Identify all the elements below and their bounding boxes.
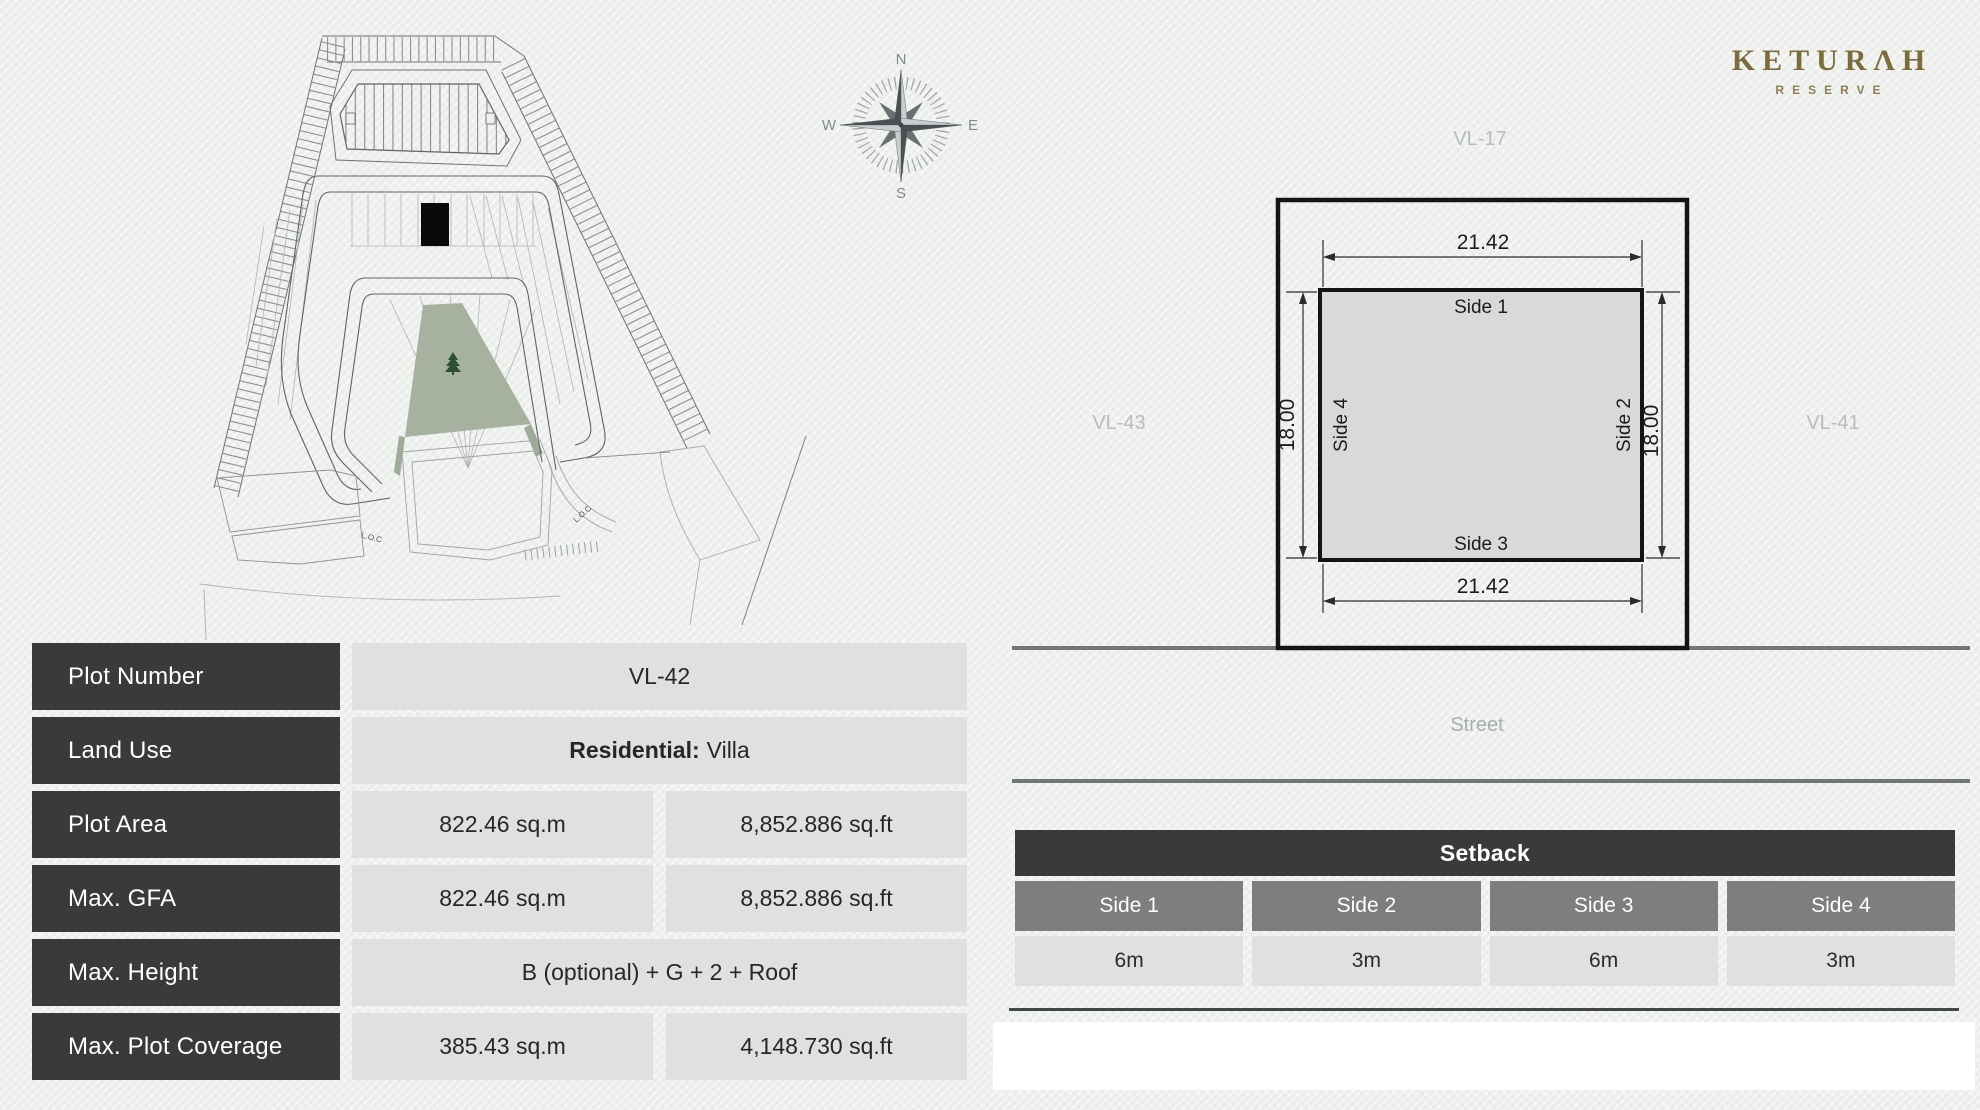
compass-e-label: E — [968, 117, 978, 134]
row-label: Plot Number — [32, 643, 340, 710]
plot-number-value: VL-42 — [352, 643, 967, 710]
max-gfa-sqm: 822.46 sq.m — [352, 865, 653, 932]
brand-logo: KETURΛH RESERVE — [1712, 44, 1952, 97]
buildable-area — [1320, 290, 1642, 560]
land-use-category: Residential: — [569, 737, 699, 764]
side4-label: Side 4 — [1331, 398, 1352, 452]
max-plot-coverage-sqm: 385.43 sq.m — [352, 1013, 653, 1080]
max-gfa-sqft: 8,852.886 sq.ft — [666, 865, 967, 932]
street-label: Street — [1450, 714, 1504, 736]
side1-label: Side 1 — [1454, 297, 1508, 318]
compass-w-label: W — [822, 117, 837, 134]
max-plot-coverage-sqft: 4,148.730 sq.ft — [666, 1013, 967, 1080]
neighbor-plot-right: VL-41 — [1806, 412, 1859, 434]
side3-label: Side 3 — [1454, 534, 1508, 555]
site-master-plan: L.O.C L.O.C — [30, 20, 830, 650]
row-label: Max. Plot Coverage — [32, 1013, 340, 1080]
table-row: Plot Number VL-42 — [32, 643, 967, 710]
row-label: Max. Height — [32, 939, 340, 1006]
setback-col-side2: Side 2 — [1252, 881, 1480, 931]
plot-area-sqft: 8,852.886 sq.ft — [666, 791, 967, 858]
footer-blank-panel — [993, 1022, 1975, 1090]
street-line-lower — [1012, 779, 1970, 783]
side2-label: Side 2 — [1614, 398, 1635, 452]
compass-rose: N S W E — [810, 28, 1000, 218]
table-row: Max. GFA 822.46 sq.m 8,852.886 sq.ft — [32, 865, 967, 932]
footer-divider-line — [1009, 1008, 1959, 1011]
setback-value-side4: 3m — [1727, 936, 1955, 986]
setback-value-side2: 3m — [1252, 936, 1480, 986]
setback-value-side3: 6m — [1490, 936, 1718, 986]
dim-left-value: 18.00 — [1276, 399, 1299, 452]
max-height-value: B (optional) + G + 2 + Roof — [352, 939, 967, 1006]
landmark-block — [421, 203, 449, 246]
land-use-type: Villa — [707, 737, 750, 764]
setback-col-side1: Side 1 — [1015, 881, 1243, 931]
plot-area-sqm: 822.46 sq.m — [352, 791, 653, 858]
setback-col-side3: Side 3 — [1490, 881, 1718, 931]
dim-bottom-value: 21.42 — [1457, 575, 1510, 598]
plot-dimension-diagram: VL-17 VL-43 VL-41 Street — [990, 95, 1980, 810]
table-row: Max. Plot Coverage 385.43 sq.m 4,148.730… — [32, 1013, 967, 1080]
row-label: Plot Area — [32, 791, 340, 858]
setback-title: Setback — [1015, 830, 1955, 876]
lower-blocks — [200, 436, 806, 640]
dim-top-value: 21.42 — [1457, 231, 1510, 254]
setback-header-row: Side 1 Side 2 Side 3 Side 4 — [1015, 881, 1955, 931]
table-row: Max. Height B (optional) + G + 2 + Roof — [32, 939, 967, 1006]
row-label: Land Use — [32, 717, 340, 784]
parking-hexagon — [330, 70, 521, 166]
table-row: Land Use Residential: Villa — [32, 717, 967, 784]
plot-info-table: Plot Number VL-42 Land Use Residential: … — [32, 643, 967, 1080]
neighbor-plot-top: VL-17 — [1453, 128, 1506, 150]
brand-title: KETURΛH — [1712, 44, 1952, 78]
loc-label-1: L.O.C — [360, 531, 383, 545]
table-row: Plot Area 822.46 sq.m 8,852.886 sq.ft — [32, 791, 967, 858]
land-use-value: Residential: Villa — [352, 717, 967, 784]
setback-value-row: 6m 3m 6m 3m — [1015, 936, 1955, 986]
neighbor-plot-left: VL-43 — [1092, 412, 1145, 434]
plot-sheet-page: L.O.C L.O.C N S W E KETU — [0, 0, 1980, 1110]
setback-table: Setback Side 1 Side 2 Side 3 Side 4 6m 3… — [1015, 830, 1955, 986]
setback-value-side1: 6m — [1015, 936, 1243, 986]
row-label: Max. GFA — [32, 865, 340, 932]
dim-right-value: 18.00 — [1640, 405, 1663, 458]
compass-s-label: S — [896, 185, 906, 202]
compass-n-label: N — [896, 51, 907, 68]
setback-col-side4: Side 4 — [1727, 881, 1955, 931]
